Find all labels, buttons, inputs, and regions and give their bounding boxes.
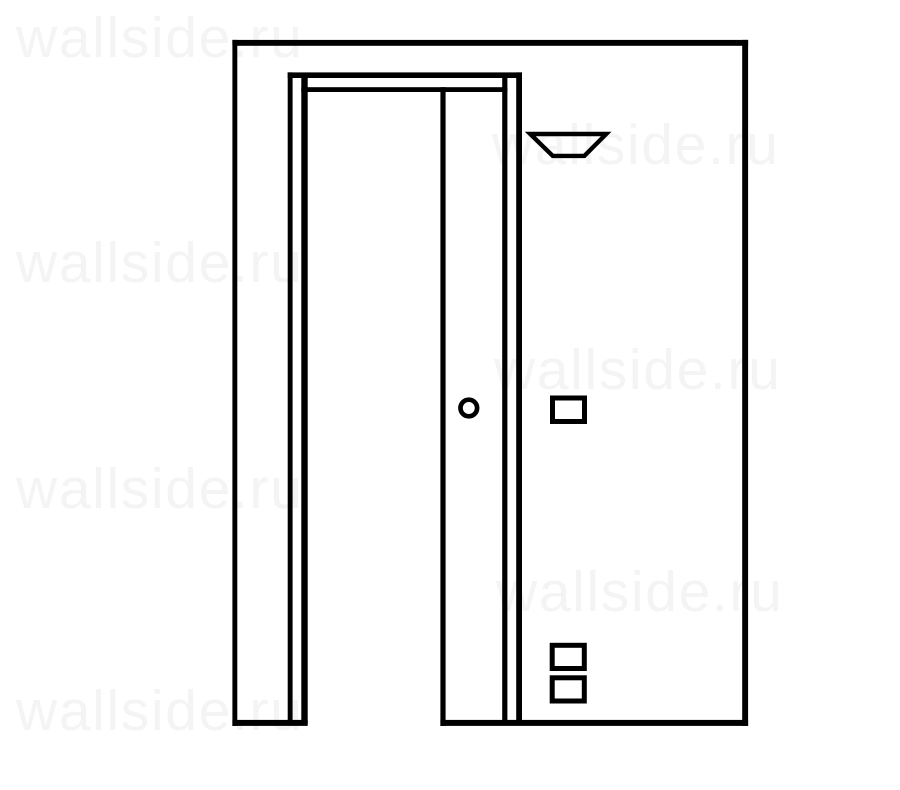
svg-text:wallside.ru: wallside.ru (15, 457, 303, 521)
svg-text:wallside.ru: wallside.ru (15, 231, 303, 295)
svg-text:wallside.ru: wallside.ru (15, 679, 303, 743)
svg-text:wallside.ru: wallside.ru (495, 560, 783, 624)
svg-text:wallside.ru: wallside.ru (491, 113, 779, 177)
svg-text:wallside.ru: wallside.ru (493, 338, 781, 402)
svg-text:wallside.ru: wallside.ru (15, 6, 303, 70)
